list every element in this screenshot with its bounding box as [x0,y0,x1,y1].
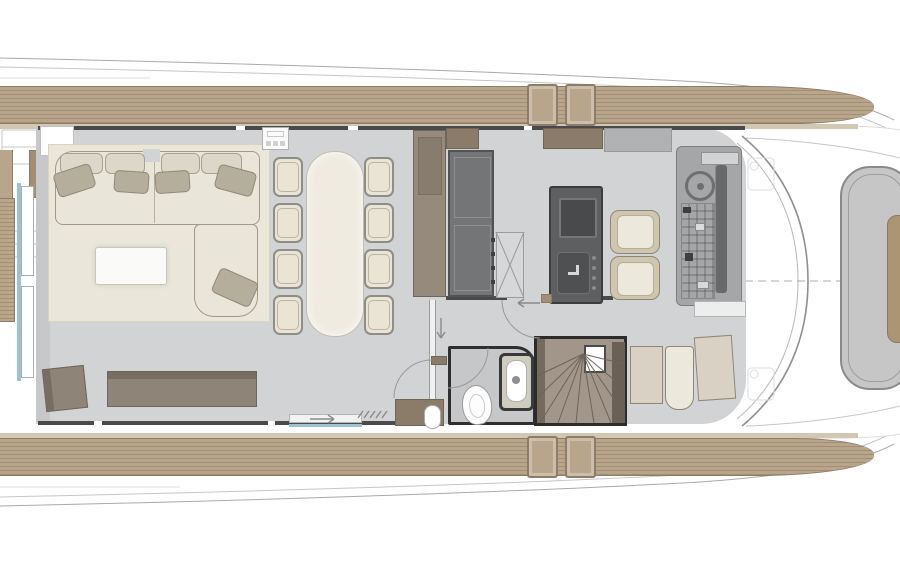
window-mullion-gap [348,126,358,130]
glassware [266,141,271,146]
galley-bulkhead [446,128,479,149]
vanity-faucet [512,376,520,384]
dining-table [306,151,364,337]
entry-fixture [424,405,441,429]
island-trim [541,294,552,303]
throw-pillow [113,170,149,194]
helm-seat-cushion [617,215,654,249]
deck-step-box [565,436,596,478]
steering-wheel [685,171,715,201]
aft-deck-planks [0,198,15,322]
aft-cabinet [42,365,88,412]
stair-stringer [537,339,545,423]
toilet [460,384,494,427]
galley-bulkhead [543,128,603,149]
sliding-door-track [289,414,362,423]
dining-chair [273,157,303,197]
galley-island [549,186,603,304]
console-tray [701,152,739,165]
appliance-door [454,157,491,218]
galley-wall-unit [448,150,494,297]
day-head [448,346,536,425]
aft-cabinet-edge [43,369,54,411]
helm-seat-cushion [617,262,654,296]
console-base-panel [694,301,746,317]
dining-chair [273,249,303,289]
knob [592,286,596,290]
aft-door-leaf [21,286,34,378]
glassware [273,141,278,146]
door-jamb [431,356,447,365]
glassware [280,141,285,146]
companion-seat [665,346,694,410]
handle [491,280,495,284]
side-cabinet [630,346,663,404]
staircase-down [534,336,627,426]
sideboard [107,371,257,407]
dining-chair [364,295,394,335]
coffee-table [95,247,167,285]
instrument-display [695,223,705,231]
appliance-door [454,225,491,291]
vanity [499,353,534,411]
helm-seat [610,256,660,300]
dining-chair [364,203,394,243]
stair-landing [584,345,606,373]
dining-chair [364,157,394,197]
yacht-main-deck-floorplan [0,0,900,564]
deck-step-box [527,436,558,478]
faucet [576,265,579,275]
dining-chair [364,249,394,289]
instrument-button [685,253,693,261]
starboard-side-deck [0,438,874,476]
deck-step-box [565,84,596,126]
stair-stringer [612,342,625,423]
toilet-seat [468,393,486,419]
throw-pillow [154,170,190,194]
aft-deck-solid [0,150,13,198]
aft-door-leaf [21,186,34,276]
sunpad-insert [887,215,900,343]
bar-cabinet-tray [267,131,284,137]
helm-console [676,146,742,306]
sideboard-top-edge [108,372,256,379]
window-mullion-gap [94,421,102,425]
tall-cabinet-upper [418,137,442,195]
cooktop [559,198,597,238]
sliding-glass-door [289,424,362,427]
handle [491,238,495,242]
window-mullion-gap [268,421,275,425]
dining-chair [273,203,303,243]
port-side-deck [0,86,874,124]
pantry-locker [496,232,524,298]
handle [491,266,495,270]
side-cabinet [694,335,736,401]
handle [491,252,495,256]
dash-shelf [604,128,672,152]
wheel-hub [697,183,704,190]
dining-chair [273,295,303,335]
window-mullion-gap [236,126,245,130]
bar-cabinet [262,127,289,150]
knob [592,266,596,270]
helm-seat [610,210,660,254]
instrument-display [697,281,709,289]
instrument-panel-strip [715,165,727,293]
knob [592,256,596,260]
window-mullion-gap [524,126,532,130]
tall-cabinet [413,130,446,297]
knob [592,276,596,280]
instrument-button [683,207,691,213]
deck-step-box [527,84,558,126]
sofa-notch [143,149,160,162]
